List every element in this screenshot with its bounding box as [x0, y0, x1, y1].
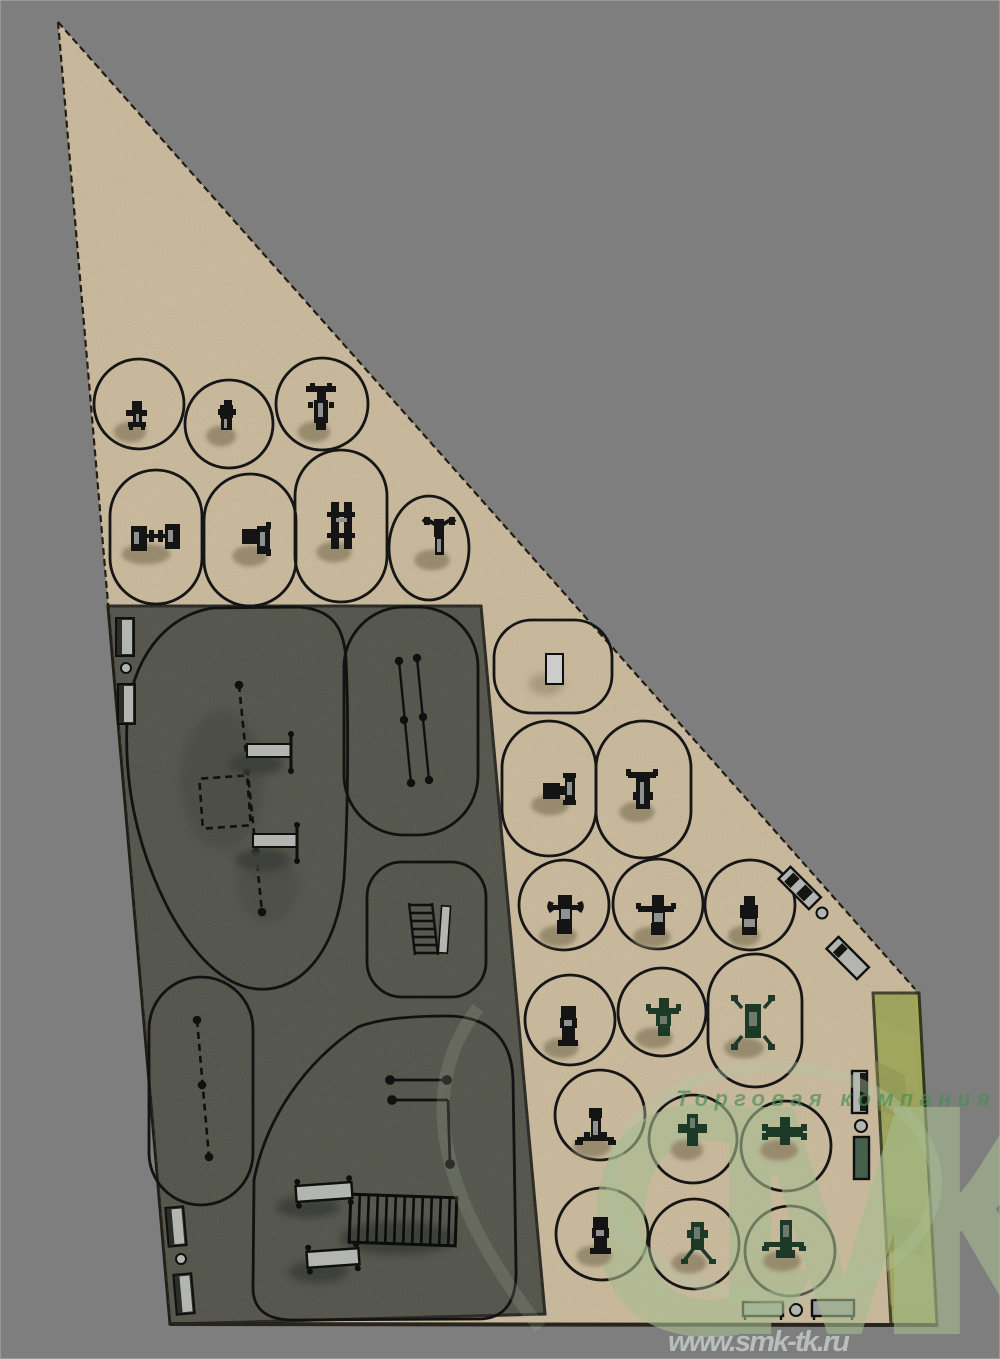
svg-text:www.smk-tk.ru: www.smk-tk.ru: [668, 1326, 850, 1358]
svg-text:Торговая компания: Торговая компания: [676, 1086, 990, 1111]
svg-text:СМК: СМК: [583, 1035, 1000, 1359]
